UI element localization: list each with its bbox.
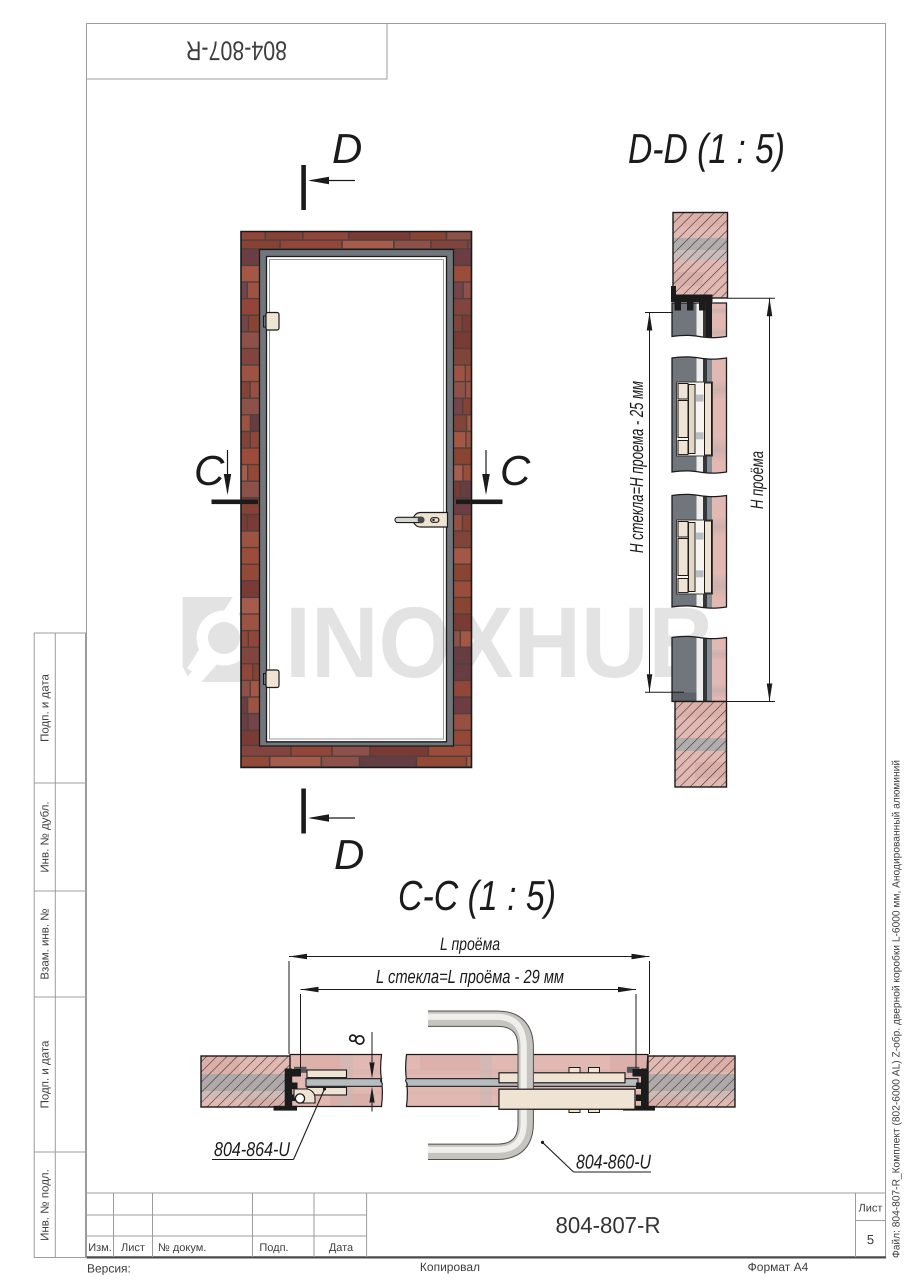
svg-text:№ докум.: № докум. xyxy=(158,1242,206,1254)
svg-text:Н проёма: Н проёма xyxy=(747,451,767,509)
svg-text:Дата: Дата xyxy=(329,1242,354,1254)
svg-text:Подп. и дата: Подп. и дата xyxy=(40,1040,52,1108)
svg-text:Изм.: Изм. xyxy=(88,1242,112,1254)
svg-text:Подп.: Подп. xyxy=(259,1242,288,1254)
svg-text:Формат А4: Формат А4 xyxy=(748,1260,809,1274)
svg-text:Лист: Лист xyxy=(121,1242,145,1254)
svg-text:Инв. № подл.: Инв. № подл. xyxy=(40,1169,52,1241)
svg-text:Лист: Лист xyxy=(859,1203,883,1215)
svg-text:D: D xyxy=(334,831,364,878)
svg-text:804-864-U: 804-864-U xyxy=(214,1139,290,1161)
svg-text:804-807-R: 804-807-R xyxy=(556,1212,661,1238)
svg-text:Н стекла=Н проема - 25 мм: Н стекла=Н проема - 25 мм xyxy=(627,381,648,553)
svg-text:INOXHUB: INOXHUB xyxy=(285,587,716,699)
svg-text:5: 5 xyxy=(867,1232,874,1247)
svg-text:Взам. инв. №: Взам. инв. № xyxy=(40,908,52,979)
svg-text:D-D (1 : 5): D-D (1 : 5) xyxy=(628,125,785,172)
svg-text:L проёма: L проёма xyxy=(440,934,500,954)
svg-text:804-807-R: 804-807-R xyxy=(186,35,287,65)
svg-text:C: C xyxy=(500,447,531,494)
svg-text:804-860-U: 804-860-U xyxy=(576,1152,651,1174)
svg-text:D: D xyxy=(332,125,362,172)
svg-text:C: C xyxy=(194,447,225,494)
svg-text:Версия:: Версия: xyxy=(87,1262,131,1276)
svg-text:C-C (1 : 5): C-C (1 : 5) xyxy=(398,872,556,919)
svg-text:L стекла=L проёма - 29 мм: L стекла=L проёма - 29 мм xyxy=(376,967,564,988)
svg-text:Подп. и дата: Подп. и дата xyxy=(40,674,52,742)
svg-text:Инв. № дубл.: Инв. № дубл. xyxy=(40,801,52,872)
svg-text:Файл: 804-807-R_Комплект (802-: Файл: 804-807-R_Комплект (802-6000 AL) Z… xyxy=(891,760,903,1258)
svg-text:Копировал: Копировал xyxy=(420,1260,480,1274)
